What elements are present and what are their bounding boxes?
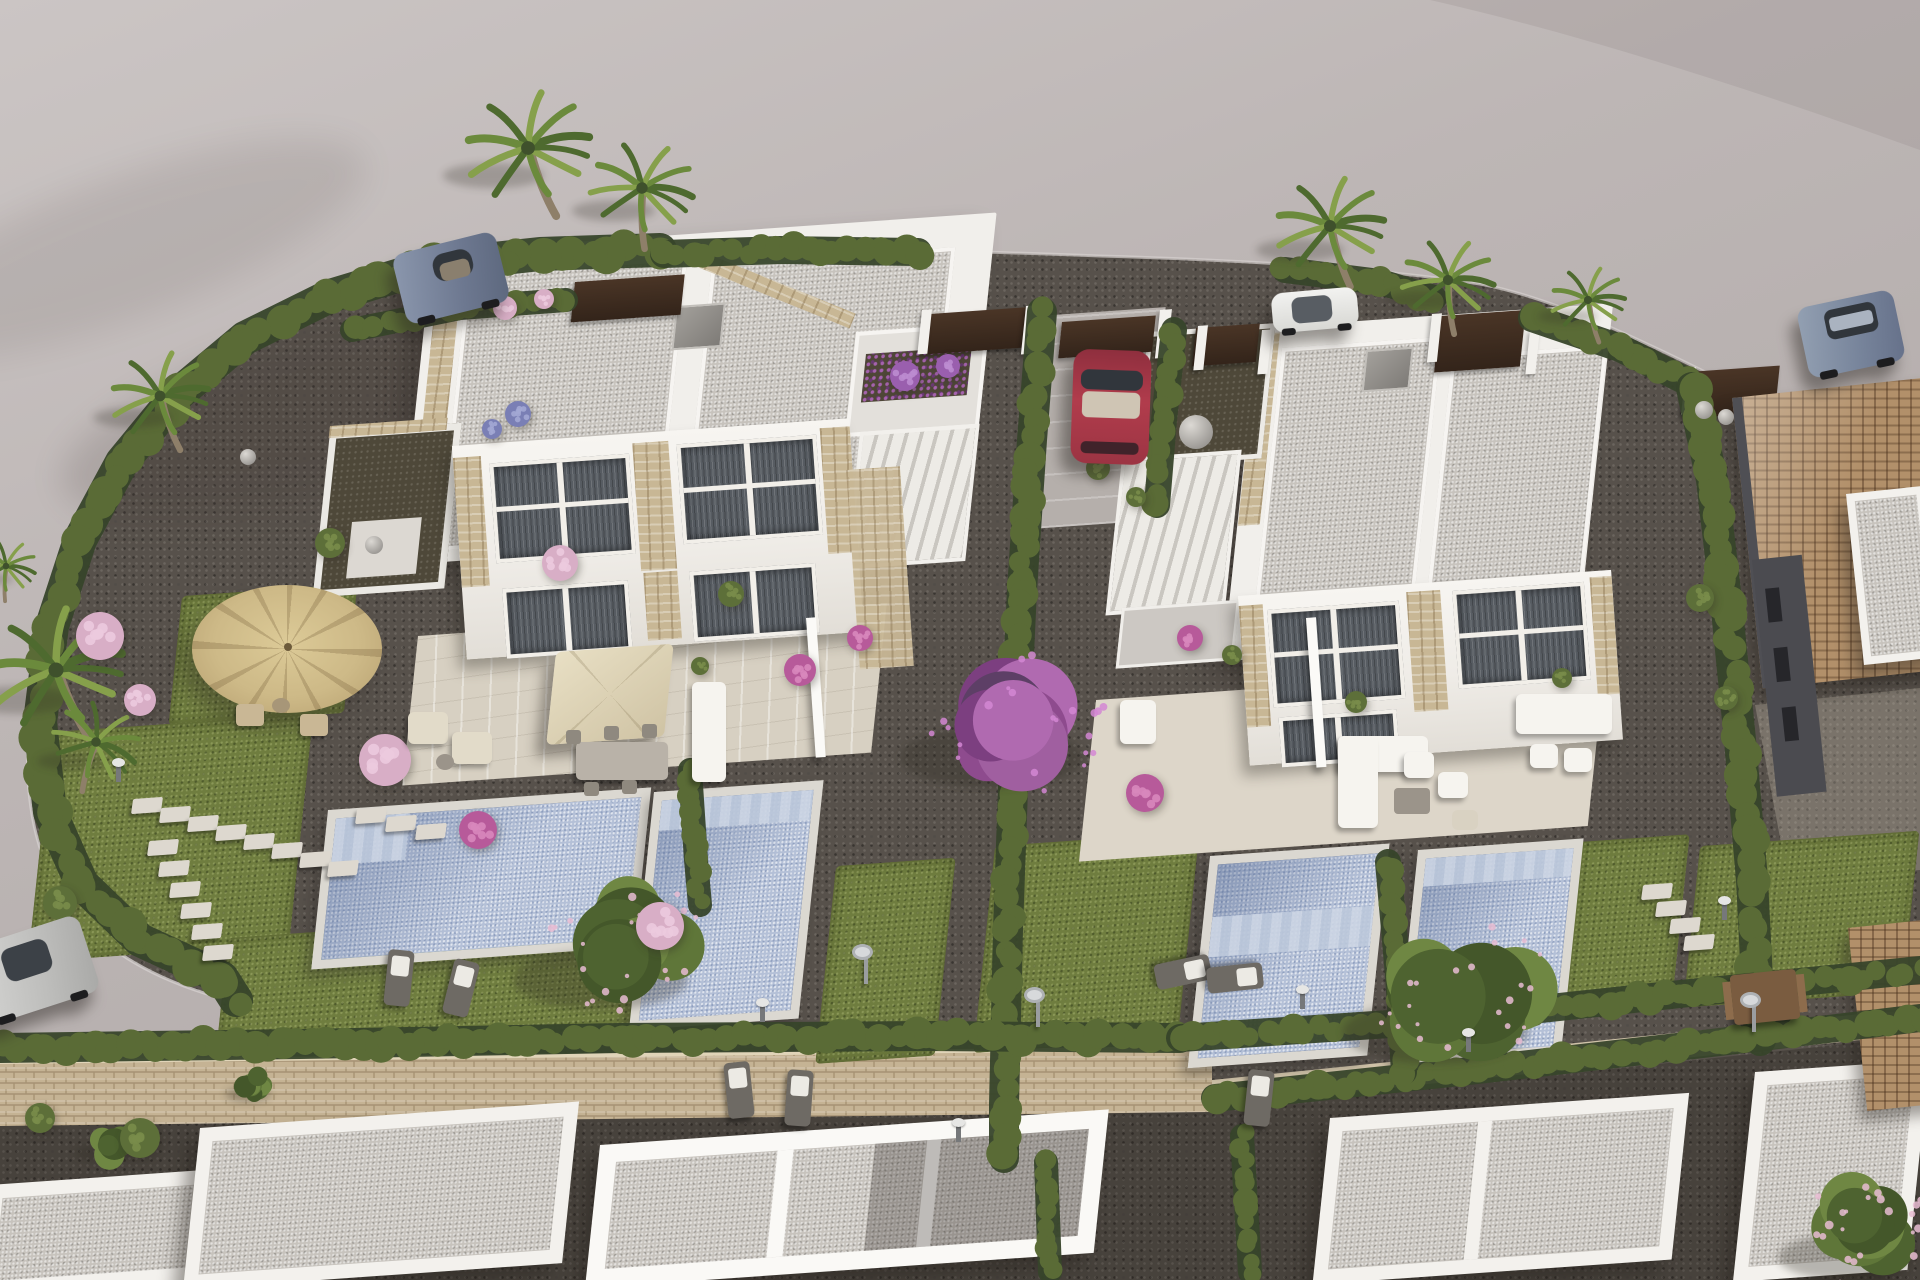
stepping-stone	[187, 815, 219, 832]
stepping-stone	[180, 902, 212, 919]
stepping-stone	[215, 824, 247, 841]
pouf	[1452, 810, 1478, 830]
garden-lamp	[760, 1006, 765, 1022]
garden-lamp	[116, 766, 121, 782]
garden-lamp	[1300, 993, 1305, 1009]
dining-chair	[642, 724, 657, 738]
armchair	[408, 712, 448, 744]
outdoor-shower	[1752, 998, 1756, 1032]
stepping-stone	[1683, 934, 1715, 951]
objects-layer	[0, 0, 1920, 1280]
stepping-stone	[299, 851, 331, 868]
stepping-stone	[159, 806, 191, 823]
outdoor-sofa	[1338, 736, 1378, 828]
stepping-stone	[415, 823, 447, 840]
dining-chair	[622, 780, 637, 794]
armchair	[452, 732, 492, 764]
dining-chair	[566, 730, 581, 744]
sun-lounger	[383, 949, 415, 1007]
stepping-stone	[131, 797, 163, 814]
stepping-stone	[1655, 900, 1687, 917]
dining-chair	[584, 782, 599, 796]
aerial-development-render	[0, 0, 1920, 1280]
garden-lamp	[1466, 1036, 1471, 1052]
outdoor-shower	[864, 950, 868, 984]
garden-chair	[236, 704, 264, 726]
red-car	[1070, 349, 1152, 466]
armchair	[1530, 744, 1558, 768]
stepping-stone	[1669, 917, 1701, 934]
stepping-stone	[158, 860, 190, 877]
armchair	[1404, 752, 1434, 778]
silver-car	[0, 913, 101, 1026]
stepping-stone	[243, 833, 275, 850]
sun-lounger	[784, 1069, 814, 1127]
stepping-stone	[191, 923, 223, 940]
armchair	[1564, 748, 1592, 772]
stepping-stone	[1641, 883, 1673, 900]
garden-chair	[300, 714, 328, 736]
sun-lounger	[723, 1061, 755, 1119]
sports-car	[391, 230, 511, 326]
outdoor-sofa	[692, 682, 726, 782]
stepping-stone	[355, 807, 387, 824]
dining-chair	[604, 726, 619, 740]
armchair	[1120, 700, 1156, 744]
white-car	[1270, 286, 1359, 333]
straw-parasol	[192, 585, 382, 713]
stepping-stone	[202, 944, 234, 961]
sun-lounger	[1153, 953, 1213, 990]
stepping-stone	[271, 842, 303, 859]
outdoor-shower	[1036, 993, 1040, 1027]
outdoor-sofa	[1516, 694, 1612, 734]
sun-lounger	[1243, 1069, 1275, 1127]
stepping-stone	[147, 839, 179, 856]
armchair	[1438, 772, 1468, 798]
sun-lounger	[1206, 962, 1264, 994]
stepping-stone	[327, 860, 359, 877]
sun-lounger	[442, 958, 481, 1019]
garden-lamp	[1722, 904, 1727, 920]
garden-table	[272, 698, 290, 713]
dining-table	[576, 742, 668, 780]
stepping-stone	[169, 881, 201, 898]
garden-lamp	[956, 1126, 961, 1142]
stepping-stone	[385, 815, 417, 832]
coffee-table	[1394, 788, 1430, 814]
suv-car	[1796, 289, 1907, 380]
side-table	[436, 754, 454, 770]
